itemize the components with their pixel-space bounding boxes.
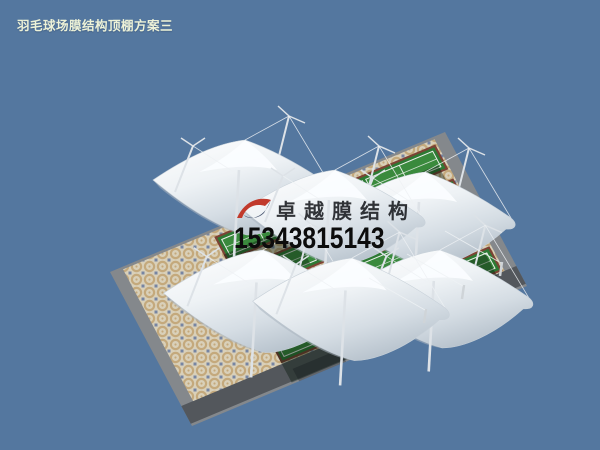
scheme-title: 羽毛球场膜结构顶棚方案三 [17,15,173,34]
mast-fork-arm [193,138,205,146]
render-canvas: 羽毛球场膜结构顶棚方案三 卓越膜结构 15343815143 [0,0,600,450]
watermark-brand-text: 卓越膜结构 [276,195,416,224]
watermark-phone-number: 15343815143 [234,224,384,254]
mast-fork-arm [458,138,469,148]
mast-fork-arm [368,136,379,146]
stay-cable [245,116,289,140]
watermark-brand-row: 卓越膜结构 [234,192,418,226]
brand-logo-icon [234,193,274,225]
logo-red-swoosh [237,199,271,218]
rear-mast [279,116,289,156]
watermark: 卓越膜结构 15343815143 [234,192,418,254]
mast-fork-arm [278,106,289,116]
mast-fork-arm [181,138,193,146]
